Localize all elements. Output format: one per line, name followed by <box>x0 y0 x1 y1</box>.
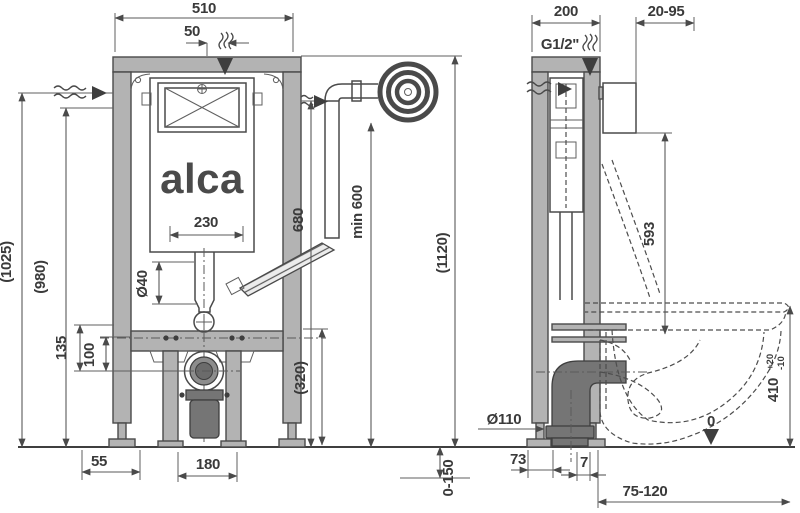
dim-230-label: 230 <box>194 214 218 231</box>
dim-320-label: (320) <box>292 361 309 395</box>
dim-410-label: 410 <box>765 378 782 402</box>
dim-50-label: 50 <box>184 23 200 40</box>
dim-55-label: 55 <box>91 453 107 470</box>
dim-0-150-label: 0-150 <box>440 460 457 497</box>
dim-135-label: 135 <box>53 336 70 360</box>
datum-zero-label: 0 <box>707 413 715 430</box>
technical-drawing: alca <box>0 0 800 513</box>
thread-g12-label: G1/2" <box>541 36 579 53</box>
dim-680-label: 680 <box>290 208 307 232</box>
dim-20-95-label: 20-95 <box>648 3 685 20</box>
dim-980-label: (980) <box>32 260 49 294</box>
dim-180-label: 180 <box>196 456 220 473</box>
dim-410-tol-plus: +20 <box>765 354 776 370</box>
dim-dia110-label: Ø110 <box>487 411 522 428</box>
dim-100-label: 100 <box>81 343 98 367</box>
dim-1120-label: (1120) <box>434 232 451 273</box>
dim-7-label: 7 <box>580 454 588 471</box>
brand-logo: alca <box>160 155 244 202</box>
dim-73-label: 73 <box>510 451 526 468</box>
dim-593-label: 593 <box>641 222 658 246</box>
dim-200-label: 200 <box>554 3 578 20</box>
dim-dia40-label: Ø40 <box>134 270 151 297</box>
dim-75-120-label: 75-120 <box>623 483 668 500</box>
dim-410-tol-minus: -10 <box>776 356 787 370</box>
dim-min600-label: min 600 <box>349 185 366 239</box>
dim-510-label: 510 <box>192 0 216 17</box>
dim-1025-label: (1025) <box>0 241 15 283</box>
